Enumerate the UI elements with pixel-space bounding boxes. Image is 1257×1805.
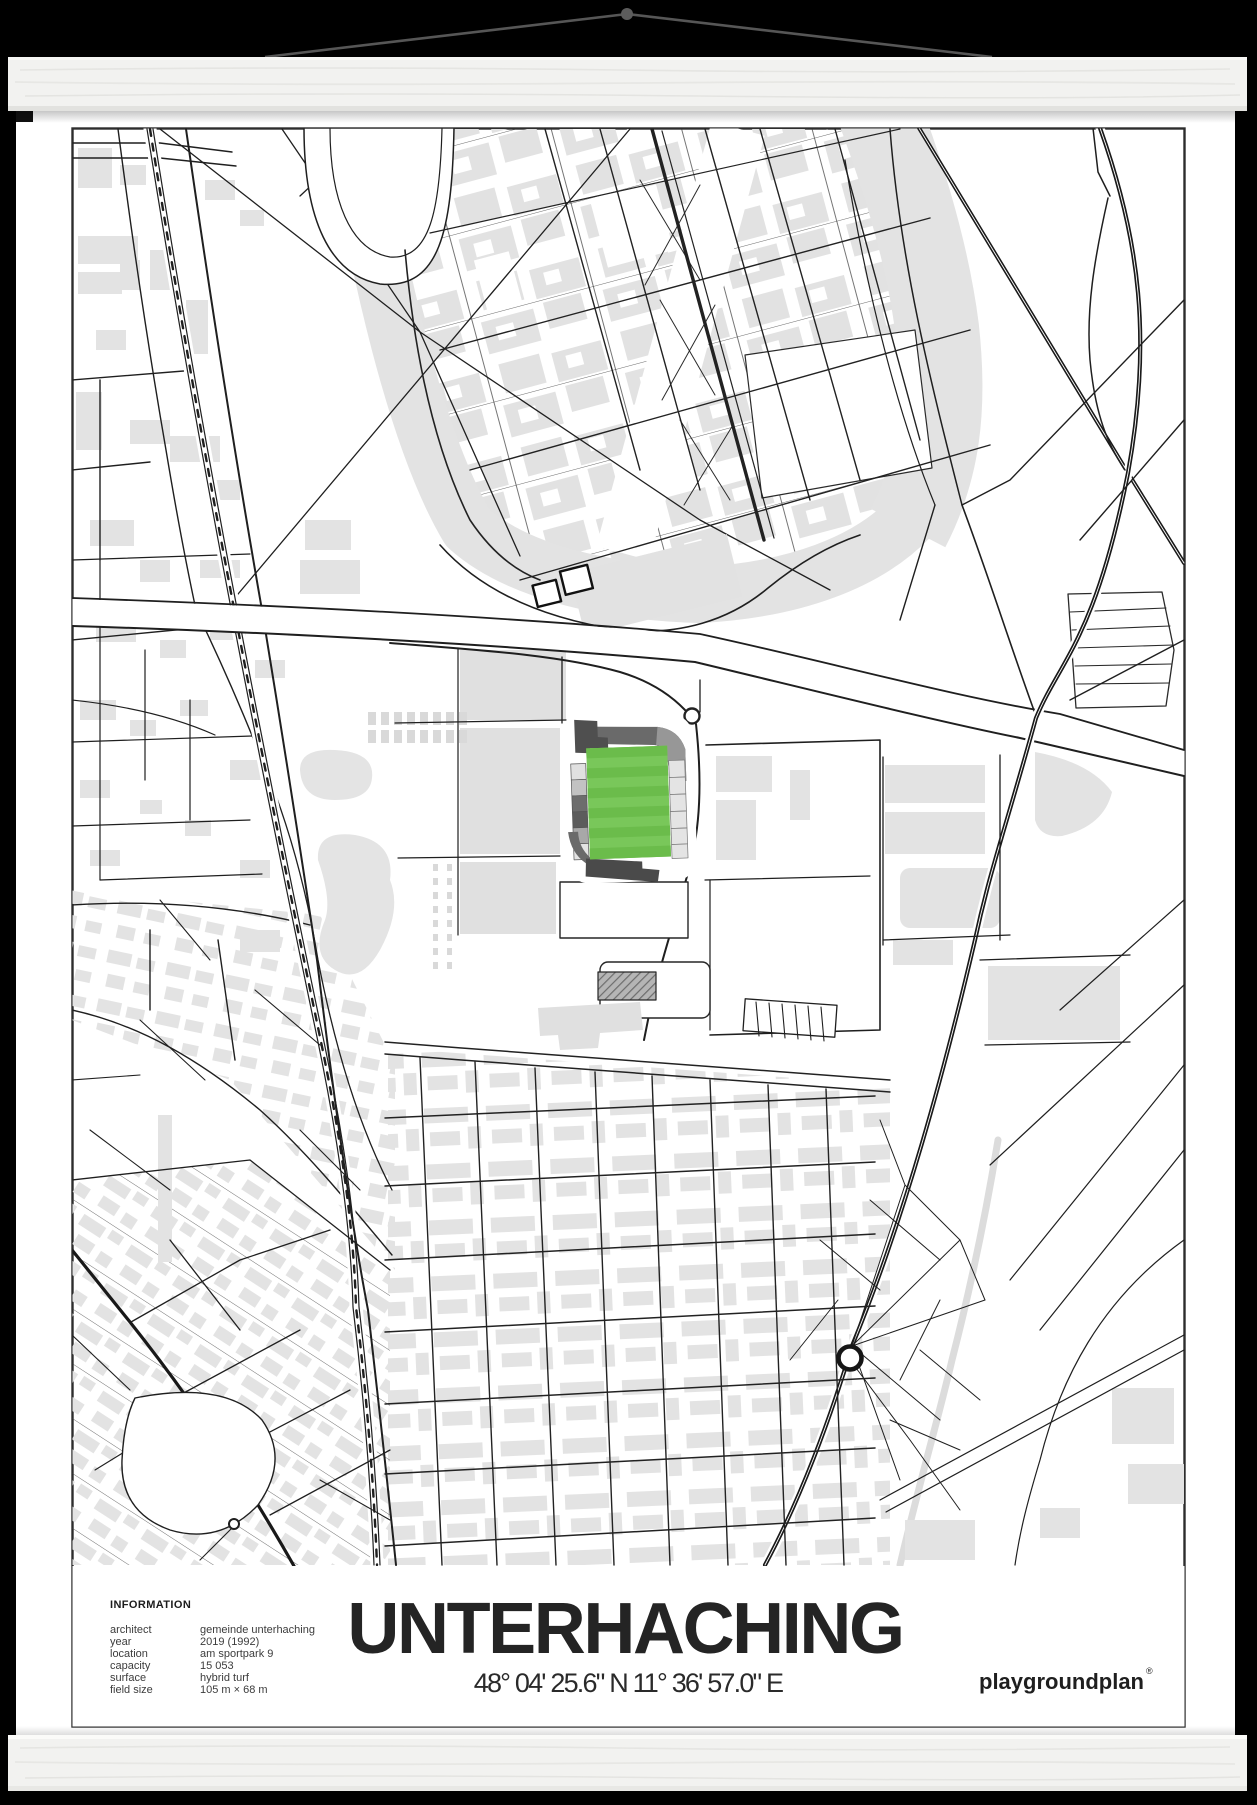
svg-text:105 m × 68 m: 105 m × 68 m — [200, 1684, 268, 1696]
svg-text:capacity: capacity — [110, 1660, 151, 1672]
svg-text:surface: surface — [110, 1672, 146, 1684]
svg-text:field size: field size — [110, 1684, 153, 1696]
svg-text:15 053: 15 053 — [200, 1660, 234, 1672]
svg-text:gemeinde unterhaching: gemeinde unterhaching — [200, 1624, 315, 1636]
svg-text:playgroundplan: playgroundplan — [979, 1669, 1144, 1694]
svg-text:architect: architect — [110, 1624, 152, 1636]
svg-text:year: year — [110, 1636, 132, 1648]
svg-text:INFORMATION: INFORMATION — [110, 1599, 191, 1611]
svg-text:am sportpark 9: am sportpark 9 — [200, 1648, 273, 1660]
svg-text:48° 04' 25.6" N 11° 36' 57.0": 48° 04' 25.6" N 11° 36' 57.0" E — [474, 1668, 783, 1698]
svg-text:2019 (1992): 2019 (1992) — [200, 1636, 259, 1648]
svg-text:hybrid turf: hybrid turf — [200, 1672, 250, 1684]
svg-text:®: ® — [1146, 1666, 1153, 1676]
svg-text:UNTERHACHING: UNTERHACHING — [347, 1589, 902, 1669]
svg-text:location: location — [110, 1648, 148, 1660]
